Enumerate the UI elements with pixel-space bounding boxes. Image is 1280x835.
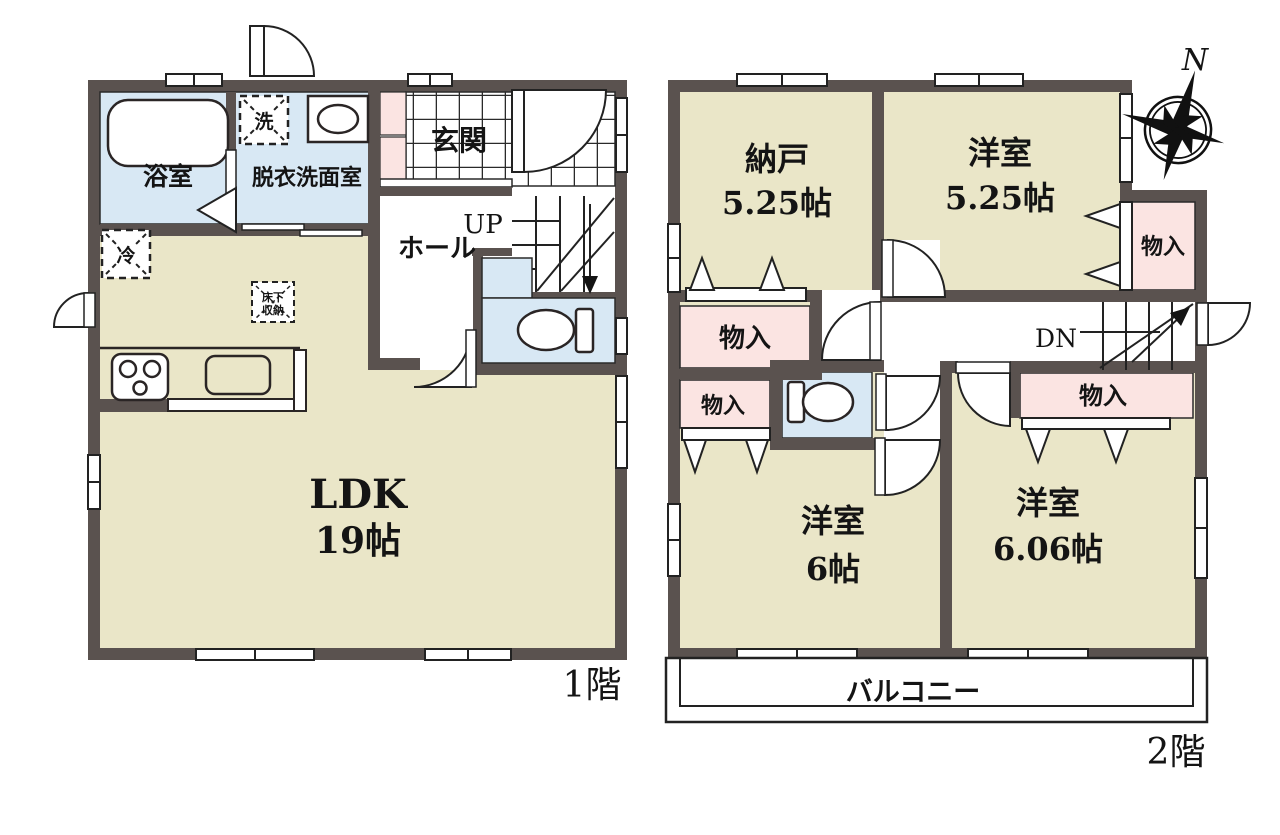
f2-floor-label: 2階: [1147, 732, 1206, 773]
f1-entrance-label: 玄関: [431, 124, 487, 157]
f2-storage-label: 納戸: [745, 140, 809, 178]
f2-west2-door-leaf: [875, 438, 885, 495]
f2-closet-606-label: 物入: [1079, 381, 1127, 410]
f2-stair-landing-door-arc: [1208, 303, 1250, 345]
f1-wall: [368, 80, 380, 370]
f2-west3-size-label: 6.06帖: [993, 530, 1103, 568]
f1-entrance-door-leaf: [512, 90, 524, 172]
f1-up-label: UP: [463, 210, 502, 240]
f1-shoe-cabinet-bottom: [380, 137, 406, 181]
f1-back-door-arc: [54, 293, 88, 327]
f1-washer-label: 洗: [254, 110, 273, 133]
f1-wall: [472, 363, 627, 375]
f2-wall: [770, 360, 782, 438]
f2-balcony-label: バルコニー: [846, 677, 980, 708]
f1-underfloor-label-2: 収納: [262, 303, 284, 317]
f2-west2-size-label: 6帖: [806, 550, 860, 588]
floor-plan-drawing: 浴室 脱衣洗面室 洗 玄関 ホール UP 冷 床下 収納 LDK 19帖 1階: [0, 0, 1280, 835]
f2-west3-door-leaf: [956, 362, 1010, 373]
f2-closet-right-label: 物入: [1141, 234, 1185, 260]
f2-stair-landing-door-leaf: [1197, 303, 1208, 345]
f2-toilet-icon: [788, 382, 853, 422]
f1-hall-door-leaf: [466, 330, 476, 387]
f2-west1-label: 洋室: [968, 134, 1032, 172]
f1-service-door-arc: [264, 26, 314, 76]
f2-wall: [680, 368, 822, 380]
f1-shoe-cabinet-top: [380, 92, 406, 135]
f1-floor-label: 1階: [563, 665, 622, 706]
f2-wall: [940, 361, 952, 648]
f2-west2-label: 洋室: [801, 502, 865, 540]
f1-wall: [380, 187, 512, 196]
f1-underfloor-label-1: 床下: [262, 290, 284, 304]
f2-closet-small-label: 物入: [701, 393, 745, 419]
floor1-plan: 浴室 脱衣洗面室 洗 玄関 ホール UP 冷 床下 収納 LDK 19帖 1階: [54, 26, 627, 706]
f1-back-door-leaf: [84, 293, 95, 327]
f1-bathtub-icon: [108, 100, 228, 166]
f2-west3-label: 洋室: [1016, 484, 1080, 522]
f1-toilet-icon: [518, 309, 593, 352]
f2-west1-door-leaf: [882, 240, 893, 297]
f1-ldk-size-label: 19帖: [315, 520, 401, 562]
f1-service-door-leaf: [250, 26, 264, 76]
f1-wall: [368, 358, 420, 370]
f1-ldk-label: LDK: [309, 471, 408, 518]
f2-storage-door-leaf: [870, 302, 881, 360]
f2-wall: [770, 438, 884, 450]
f1-sink-icon: [308, 96, 368, 142]
f1-fridge-label: 冷: [116, 244, 135, 267]
f1-entrance-step: [380, 179, 512, 187]
f1-washbasin-alcove: [482, 258, 532, 298]
f2-doorway-gap: [822, 290, 880, 302]
f1-bath-label: 浴室: [143, 162, 193, 191]
floor2-plan: N 納戸 5.25帖 洋室 5.25帖 物入 物入 物入 物入 DN 洋室 6帖…: [666, 43, 1250, 773]
compass-north-label: N: [1181, 43, 1210, 78]
f2-dn-label: DN: [1035, 324, 1077, 353]
f2-toilet-door-leaf: [876, 374, 886, 430]
f2-west1-size-label: 5.25帖: [945, 179, 1055, 217]
f2-storage-size-label: 5.25帖: [722, 184, 832, 222]
floor-plan-page: 浴室 脱衣洗面室 洗 玄関 ホール UP 冷 床下 収納 LDK 19帖 1階: [0, 0, 1280, 835]
f2-closet-hall-label: 物入: [719, 324, 771, 354]
f1-washroom-label: 脱衣洗面室: [252, 165, 362, 191]
f1-stove-icon: [112, 354, 168, 400]
